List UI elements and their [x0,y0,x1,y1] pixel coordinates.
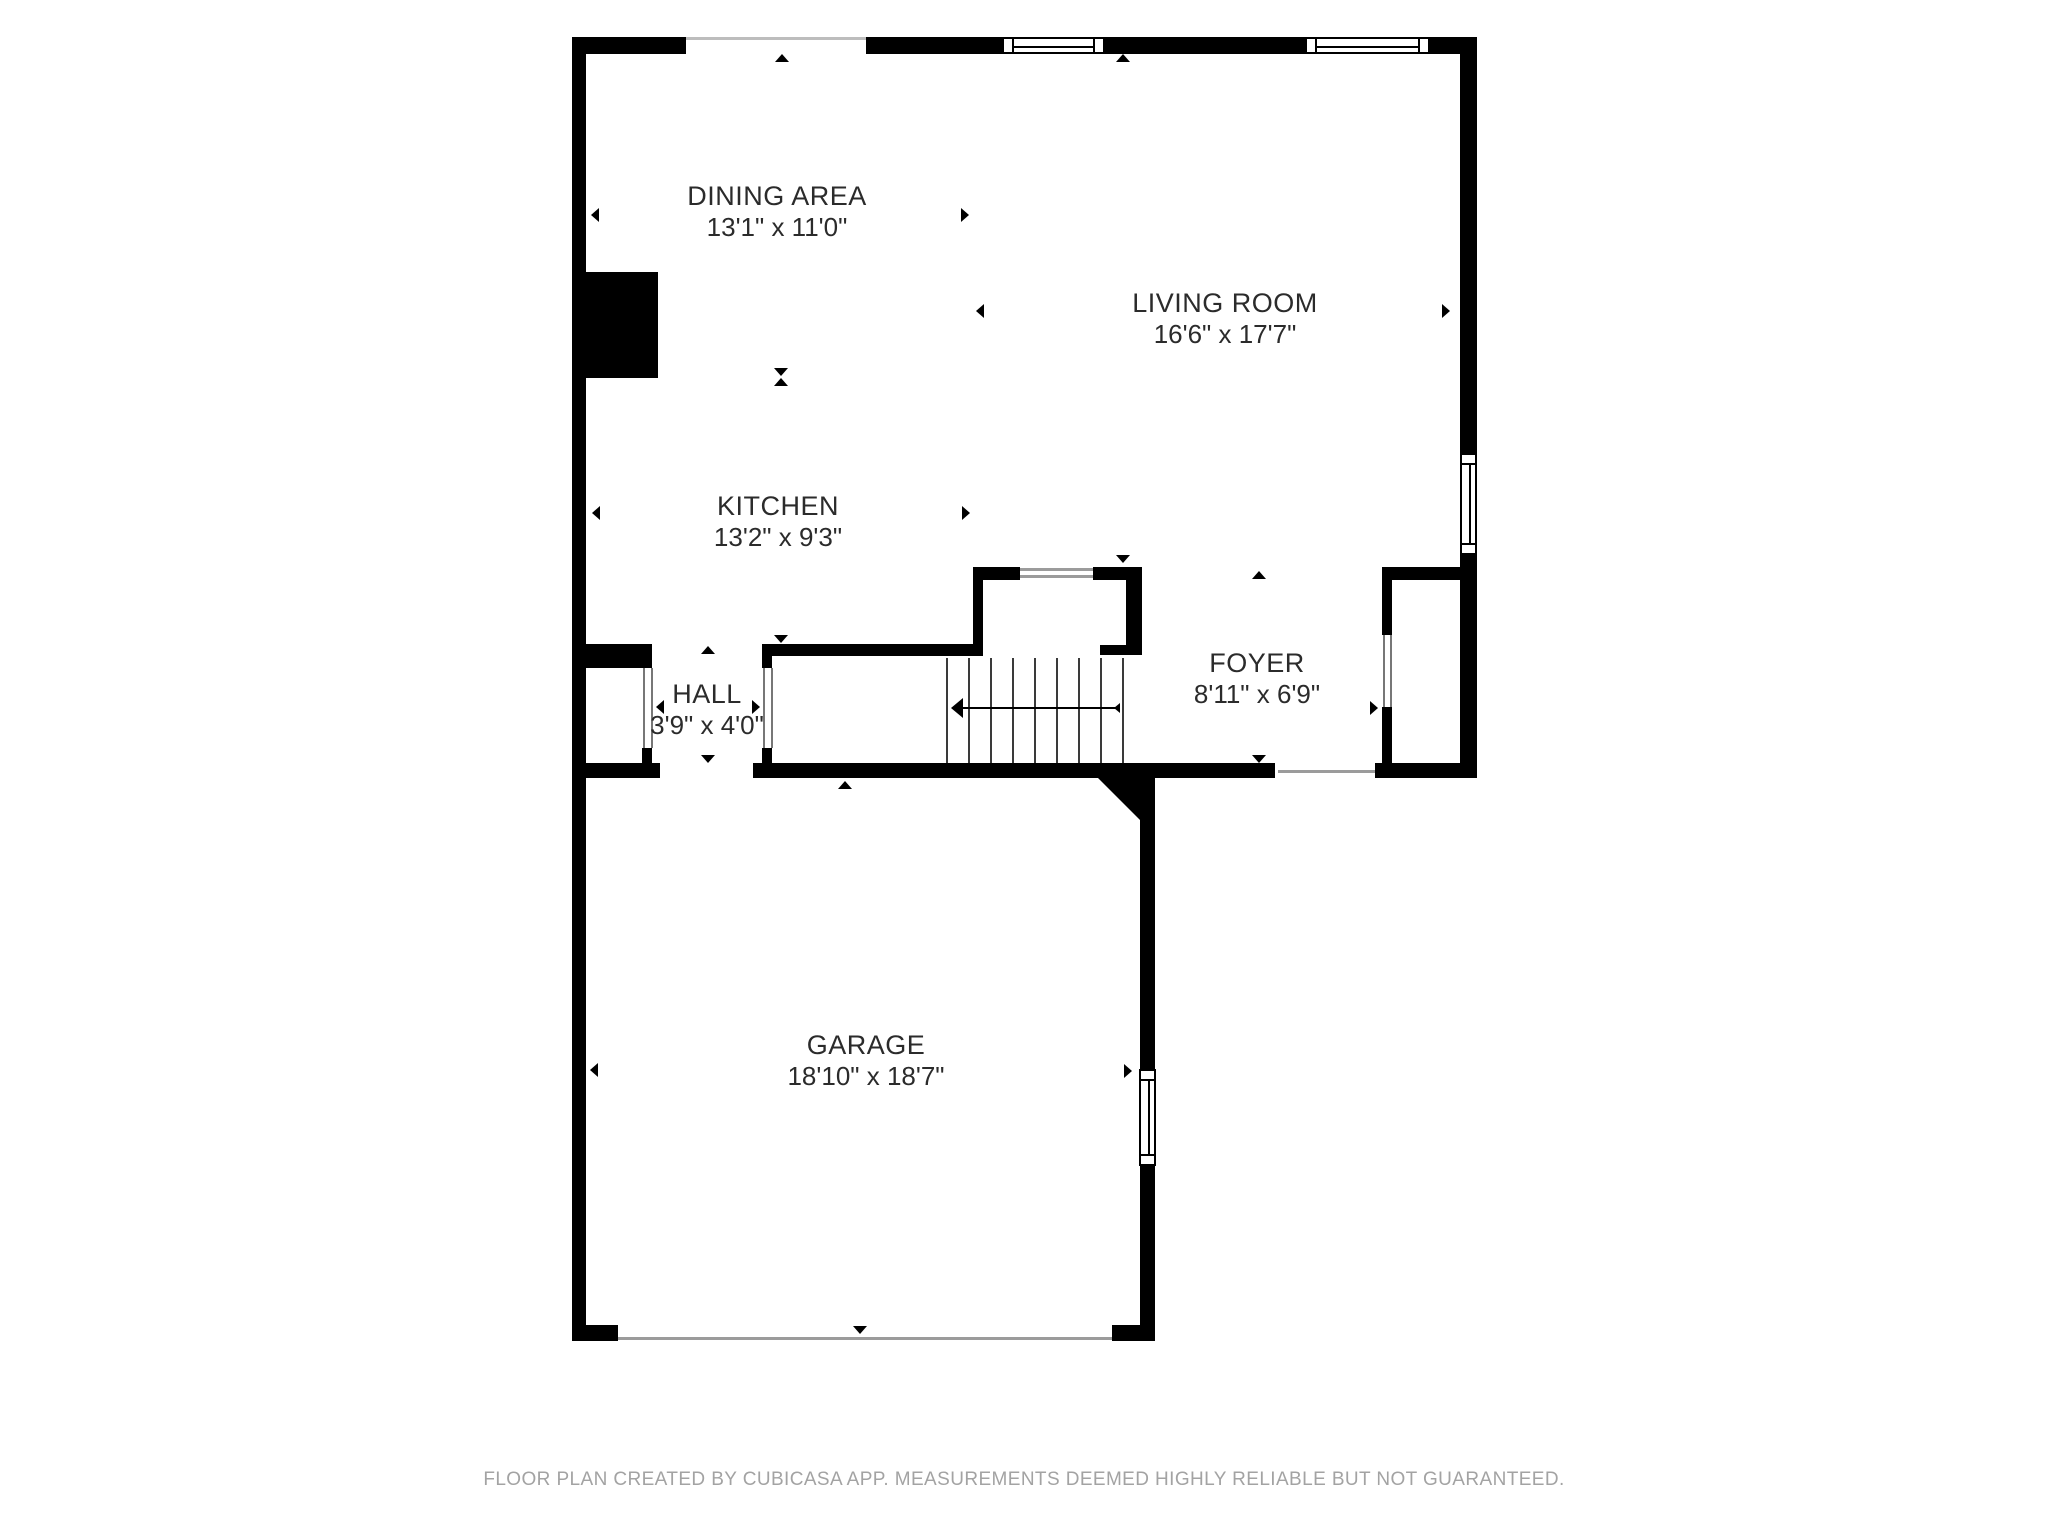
wall-segment [753,763,1098,778]
stair-tread [1012,658,1014,763]
wall-segment-diagonal [1098,763,1155,820]
window-frame-line [1141,1154,1154,1156]
wall-segment [572,763,660,778]
wall-segment [1140,818,1155,1069]
opening-line [618,1337,1112,1340]
wall-segment [973,567,983,656]
wall-segment [1382,580,1392,635]
wall-segment [572,37,586,1341]
room-dimensions-foyer: 8'11" x 6'9" [1194,679,1320,710]
opening-arrow-icon [701,755,715,763]
wall-segment [1140,1166,1155,1341]
wall-segment [762,656,772,668]
opening-arrow-icon [1114,703,1120,713]
wall-segment [572,37,686,54]
wall-segment [983,567,1020,580]
opening-arrow-icon [774,368,788,376]
room-label-kitchen: KITCHEN 13'2" x 9'3" [714,491,842,553]
stair-tread [1122,658,1124,763]
opening-line [643,668,645,748]
opening-arrow-icon [1252,571,1266,579]
room-label-living: LIVING ROOM 16'6" x 17'7" [1132,288,1318,350]
room-dimensions-dining: 13'1" x 11'0" [687,212,867,243]
room-name-living: LIVING ROOM [1132,288,1318,319]
window [1002,37,1105,54]
wall-segment [762,644,983,656]
room-label-foyer: FOYER 8'11" x 6'9" [1194,648,1320,710]
opening-line [1020,568,1093,571]
window-frame-line [1093,39,1095,52]
room-name-hall: HALL [650,679,764,710]
wall-segment [1112,1325,1155,1341]
stair-tread [990,658,992,763]
opening-arrow-icon [853,1326,867,1334]
opening-arrow-icon [1116,54,1130,62]
wall-segment [1105,37,1305,54]
opening-line [1278,770,1375,773]
wall-segment [572,1325,618,1341]
stair-tread [968,658,970,763]
wall-segment [762,748,772,763]
wall-segment [1460,37,1477,453]
wall-segment [642,748,652,763]
opening-arrow-icon [1252,755,1266,763]
stair-tread [946,658,948,763]
opening-line [686,37,866,40]
window-frame-line [1014,46,1093,48]
opening-arrow-icon [838,781,852,789]
opening-arrow-icon [1116,555,1130,563]
wall-segment [642,656,652,668]
opening-arrow-icon [591,208,599,222]
opening-arrow-icon [951,698,963,718]
stair-tread [1034,658,1036,763]
opening-line [1020,575,1093,578]
opening-arrow-icon [1124,1064,1132,1078]
wall-segment [1100,645,1126,655]
room-label-dining: DINING AREA 13'1" x 11'0" [687,181,867,243]
opening-arrow-icon [774,378,788,386]
window [1305,37,1430,54]
window-frame-line [1462,543,1475,545]
window-frame-line [1317,46,1418,48]
stair-tread [1100,658,1102,763]
room-dimensions-hall: 3'9" x 4'0" [650,710,764,741]
opening-arrow-icon [590,1063,598,1077]
wall-segment [1382,567,1477,580]
opening-arrow-icon [962,506,970,520]
wall-segment [1382,707,1392,763]
opening-arrow-icon [592,506,600,520]
room-name-dining: DINING AREA [687,181,867,212]
window [1139,1069,1156,1166]
opening-arrow-icon [701,646,715,654]
opening-arrow-icon [976,304,984,318]
stair-tread [1056,658,1058,763]
floor-plan: DINING AREA 13'1" x 11'0" LIVING ROOM 16… [0,0,2048,1536]
wall-segment [1375,763,1477,778]
window-frame-line [1148,1081,1150,1154]
disclaimer-text: FLOOR PLAN CREATED BY CUBICASA APP. MEAS… [0,1469,2048,1491]
wall-segment [1460,555,1477,778]
opening-line [1383,635,1385,707]
room-name-kitchen: KITCHEN [714,491,842,522]
opening-line [1390,635,1392,707]
stair-direction-arrow [956,707,1116,709]
room-name-garage: GARAGE [787,1030,944,1061]
window-frame-line [1469,465,1471,543]
opening-line [771,668,773,748]
room-dimensions-garage: 18'10" x 18'7" [787,1061,944,1092]
room-dimensions-living: 16'6" x 17'7" [1132,319,1318,350]
stair-tread [1078,658,1080,763]
opening-arrow-icon [1370,701,1378,715]
room-label-garage: GARAGE 18'10" x 18'7" [787,1030,944,1092]
room-label-hall: HALL 3'9" x 4'0" [650,679,764,741]
room-dimensions-kitchen: 13'2" x 9'3" [714,522,842,553]
wall-segment [1153,763,1275,778]
opening-arrow-icon [774,635,788,643]
wall-segment [1126,567,1142,655]
opening-arrow-icon [775,54,789,62]
room-name-foyer: FOYER [1194,648,1320,679]
opening-arrow-icon [961,208,969,222]
window [1460,453,1477,555]
opening-arrow-icon [1442,304,1450,318]
wall-segment [586,272,658,378]
window-frame-line [1418,39,1420,52]
wall-segment [866,37,1002,54]
